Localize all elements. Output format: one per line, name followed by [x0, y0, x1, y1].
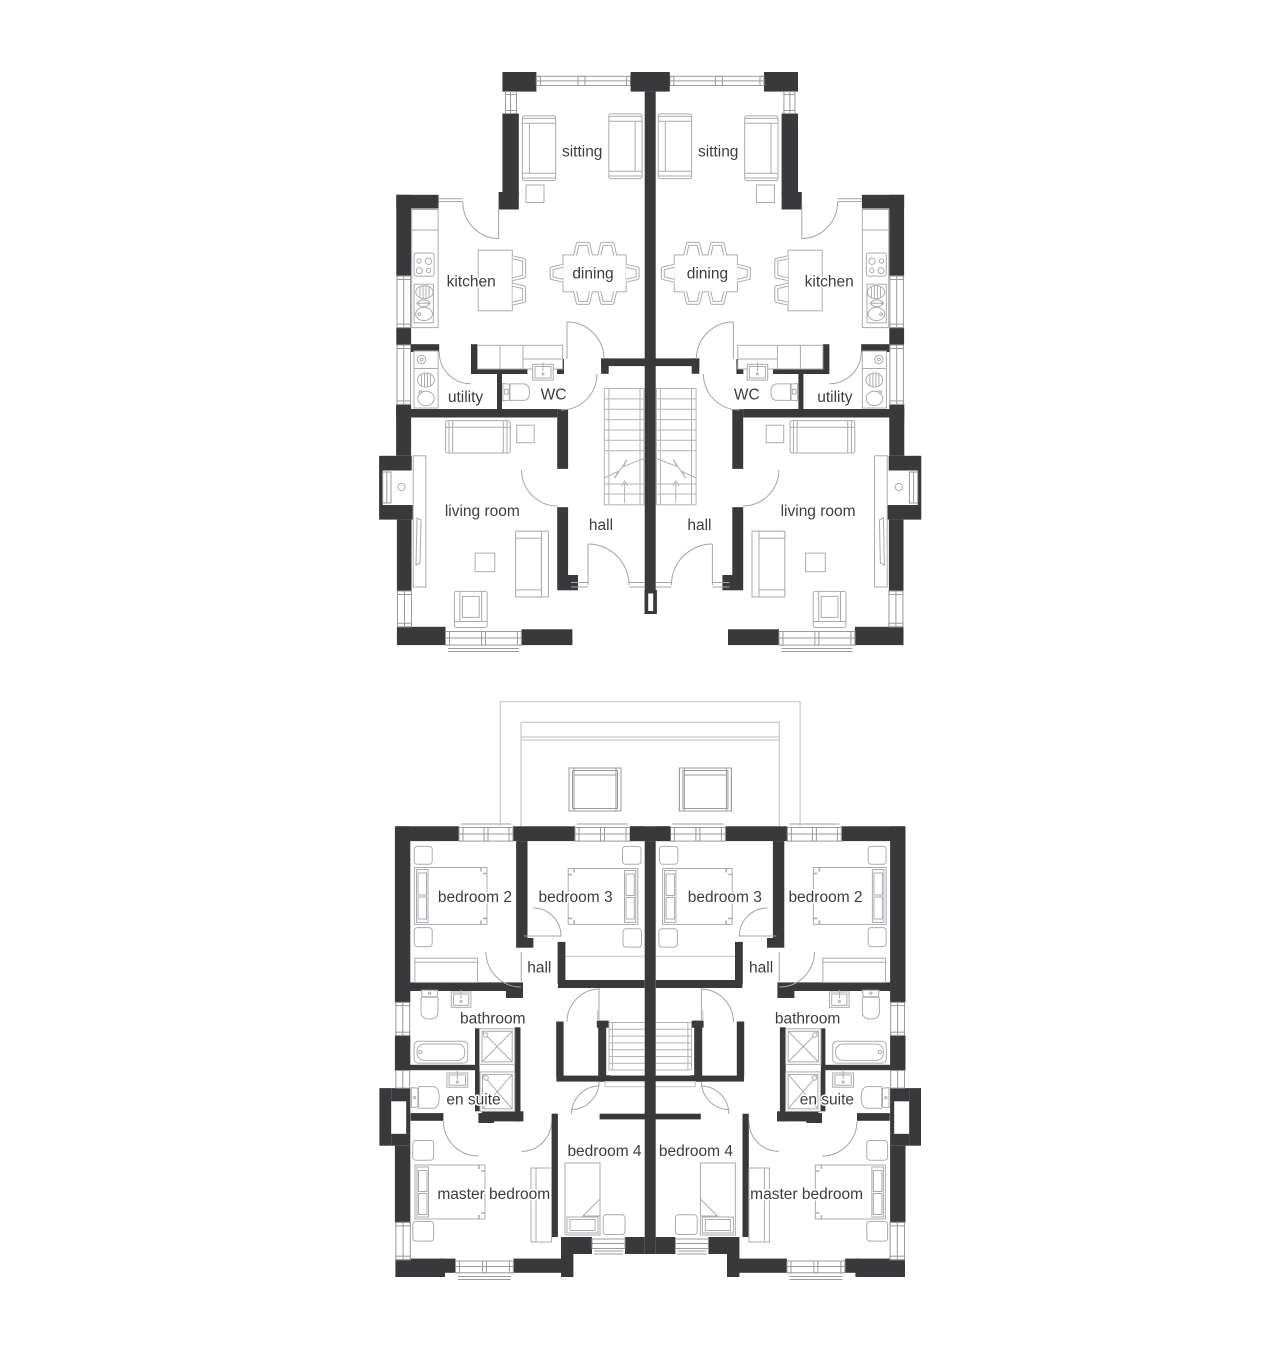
svg-text:bedroom 4: bedroom 4	[567, 1143, 641, 1160]
svg-text:hall: hall	[749, 960, 773, 977]
svg-text:bedroom 4: bedroom 4	[659, 1143, 733, 1160]
svg-text:bathroom: bathroom	[460, 1011, 525, 1028]
svg-text:sitting: sitting	[562, 143, 603, 160]
svg-text:utility: utility	[817, 389, 853, 406]
svg-text:dining: dining	[687, 265, 728, 282]
svg-text:master bedroom: master bedroom	[437, 1186, 550, 1203]
svg-text:hall: hall	[589, 517, 613, 534]
svg-text:utility: utility	[448, 389, 484, 406]
svg-text:living room: living room	[781, 503, 856, 520]
svg-text:WC: WC	[541, 386, 567, 403]
svg-text:en suite: en suite	[800, 1092, 854, 1109]
svg-text:bedroom 3: bedroom 3	[688, 889, 762, 906]
svg-text:kitchen: kitchen	[447, 273, 496, 290]
svg-text:living room: living room	[445, 503, 520, 520]
svg-text:dining: dining	[572, 265, 613, 282]
svg-text:master bedroom: master bedroom	[750, 1186, 863, 1203]
svg-text:WC: WC	[734, 386, 760, 403]
svg-text:bedroom 3: bedroom 3	[539, 889, 613, 906]
svg-text:en suite: en suite	[446, 1092, 500, 1109]
svg-text:kitchen: kitchen	[805, 273, 854, 290]
svg-text:hall: hall	[527, 960, 551, 977]
svg-text:hall: hall	[687, 517, 711, 534]
svg-text:bedroom 2: bedroom 2	[438, 889, 512, 906]
svg-text:sitting: sitting	[698, 143, 739, 160]
svg-text:bathroom: bathroom	[775, 1011, 840, 1028]
svg-text:bedroom 2: bedroom 2	[788, 889, 862, 906]
